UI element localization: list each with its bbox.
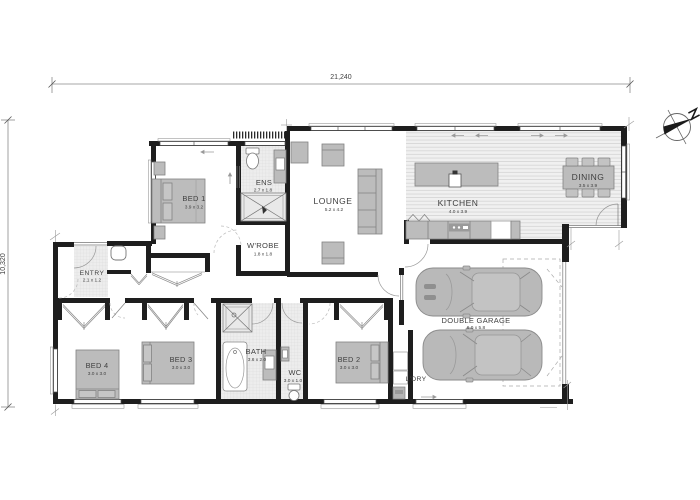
svg-text:4.0 x 3.9: 4.0 x 3.9 <box>449 209 468 215</box>
svg-text:L'DRY: L'DRY <box>406 376 427 383</box>
svg-text:3.6 x 2.0: 3.6 x 2.0 <box>248 357 267 363</box>
svg-text:6.0 x 5.8: 6.0 x 5.8 <box>467 325 486 331</box>
svg-text:DINING: DINING <box>572 172 605 182</box>
svg-text:BED 2: BED 2 <box>338 355 361 364</box>
svg-text:21,240: 21,240 <box>330 74 352 81</box>
svg-text:3.5 x 3.9: 3.5 x 3.9 <box>579 183 598 189</box>
svg-text:2.1 x 1.2: 2.1 x 1.2 <box>83 278 102 284</box>
svg-text:BED 1: BED 1 <box>182 194 205 203</box>
svg-text:2.7 x 1.8: 2.7 x 1.8 <box>254 188 273 194</box>
svg-text:BED 3: BED 3 <box>170 355 193 364</box>
svg-text:3.0 x 3.0: 3.0 x 3.0 <box>172 365 191 371</box>
svg-text:3.9 x 3.2: 3.9 x 3.2 <box>185 205 204 211</box>
svg-text:5.2 x 4.2: 5.2 x 4.2 <box>325 207 344 213</box>
svg-text:KITCHEN: KITCHEN <box>438 198 479 208</box>
svg-text:DOUBLE GARAGE: DOUBLE GARAGE <box>442 316 511 325</box>
svg-text:LOUNGE: LOUNGE <box>314 196 353 206</box>
svg-text:3.0 x 1.0: 3.0 x 1.0 <box>284 378 303 384</box>
svg-text:3.0 x 3.0: 3.0 x 3.0 <box>340 365 359 371</box>
svg-text:BED 4: BED 4 <box>86 361 109 370</box>
svg-text:3.0 x 3.0: 3.0 x 3.0 <box>88 371 107 377</box>
svg-text:WC: WC <box>289 368 302 377</box>
svg-text:10,320: 10,320 <box>0 253 7 275</box>
svg-text:W'ROBE: W'ROBE <box>247 241 279 250</box>
svg-text:ENS: ENS <box>256 178 272 187</box>
svg-text:ENTRY: ENTRY <box>80 270 105 277</box>
svg-text:1.8 x 1.8: 1.8 x 1.8 <box>254 252 273 258</box>
svg-text:BATH: BATH <box>246 347 267 356</box>
